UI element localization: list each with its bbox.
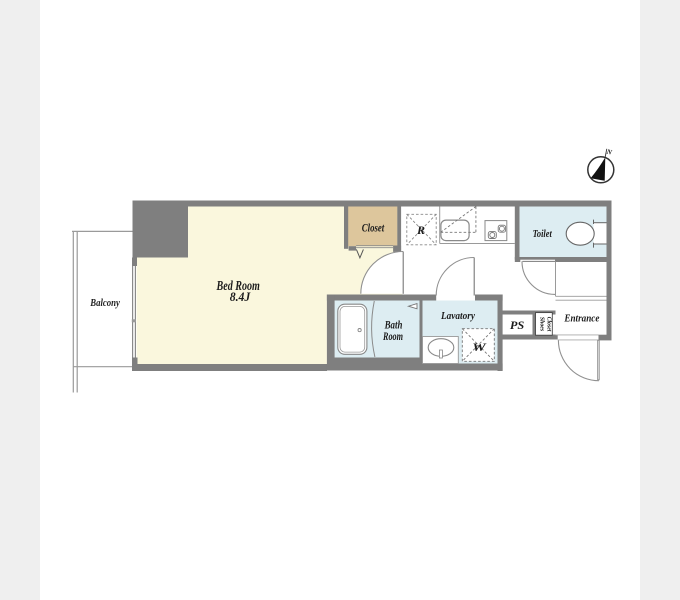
svg-text:Lavatory: Lavatory xyxy=(440,310,475,322)
svg-text:Balcony: Balcony xyxy=(90,297,120,309)
svg-text:Room: Room xyxy=(382,331,403,343)
svg-text:R: R xyxy=(416,223,425,237)
svg-text:Closet: Closet xyxy=(362,222,385,234)
svg-text:W: W xyxy=(472,340,487,354)
svg-text:Entrance: Entrance xyxy=(564,313,600,325)
svg-text:Toilet: Toilet xyxy=(533,228,553,240)
svg-text:Shoes: Shoes xyxy=(538,317,544,332)
svg-text:PS: PS xyxy=(510,320,524,332)
svg-text:Bath: Bath xyxy=(384,320,403,332)
svg-text:8.4J: 8.4J xyxy=(230,290,251,304)
svg-text:Closet: Closet xyxy=(546,317,552,332)
